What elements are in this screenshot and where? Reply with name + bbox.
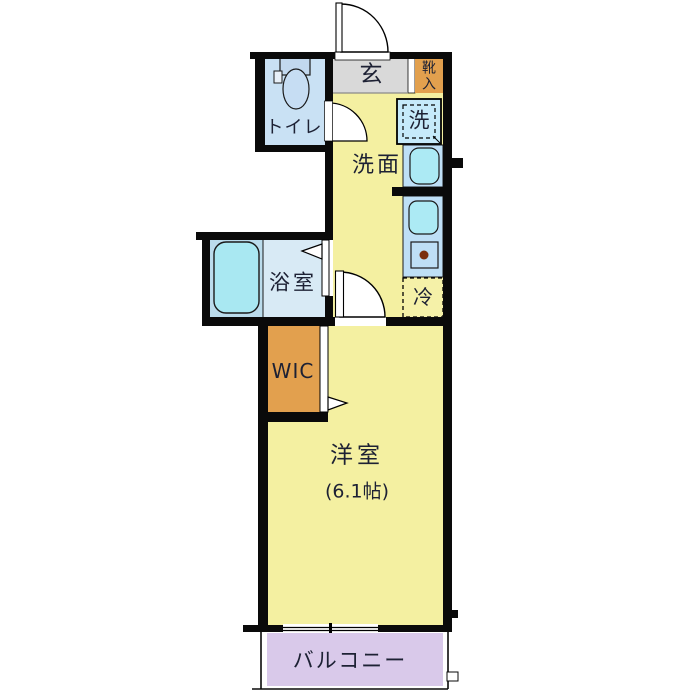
stove-burner-icon [420, 251, 429, 260]
wall-mid-right [386, 317, 452, 326]
wall-bathroom-top [196, 232, 333, 240]
shoe-cabinet-label: 靴入 [421, 60, 435, 92]
wall-bathroom-left [202, 240, 210, 317]
bathroom-door-panel [322, 240, 329, 296]
balcony-window [283, 623, 378, 633]
wall-toilet-bottom [255, 145, 333, 152]
toilet-door-leaf [325, 101, 333, 141]
wic-door-panel [320, 326, 328, 412]
toilet-label: トイレ [266, 119, 323, 137]
bathtub [214, 242, 259, 313]
bathroom-label: 浴室 [269, 273, 317, 294]
wall-center-b [325, 141, 333, 240]
wall-center-c [325, 296, 333, 317]
window-center-tick [329, 623, 332, 633]
wall-right [443, 52, 452, 632]
kitchen-sink [409, 201, 438, 234]
washroom-door-leaf [336, 271, 344, 317]
wall-top-right [390, 52, 452, 59]
wall-left-lower [258, 317, 268, 632]
shoe-cabinet-door [408, 58, 415, 93]
balcony-label: バルコニー [293, 651, 408, 672]
balcony-drain-box [447, 672, 458, 681]
washer-label: 洗 [409, 111, 430, 132]
wall-wic-bottom [258, 412, 328, 422]
wall-toilet-left [255, 58, 265, 152]
refrigerator-label: 冷 [413, 287, 433, 307]
wall-bottom-left [243, 625, 283, 632]
entrance-door-arc [341, 4, 388, 52]
floor-plan-drawing [0, 0, 700, 700]
wic-label: WIC [272, 361, 315, 381]
toilet-bowl [283, 69, 309, 109]
wall-center-a [325, 58, 333, 101]
genkan-label: 玄 [360, 64, 383, 87]
vanity-basin [410, 148, 439, 184]
entrance-door-leaf [336, 3, 342, 52]
wall-kitchen-divider [392, 187, 452, 196]
western-room-label: 洋室 [330, 445, 384, 468]
toilet-flush-handle [274, 71, 282, 83]
washroom-label: 洗面 [352, 155, 402, 177]
wall-right-notch-lower [443, 610, 458, 618]
floor-plan: 玄 靴入 トイレ 洗 洗面 浴室 冷 WIC 洋室 (6.1帖) バルコニー [0, 0, 700, 700]
western-room-size: (6.1帖) [325, 483, 389, 502]
wall-top-left [250, 52, 336, 59]
wall-bottom-right [378, 625, 452, 632]
wall-right-notch-upper [443, 158, 463, 168]
entrance-threshold [335, 52, 390, 60]
wall-mid-left [202, 317, 335, 326]
